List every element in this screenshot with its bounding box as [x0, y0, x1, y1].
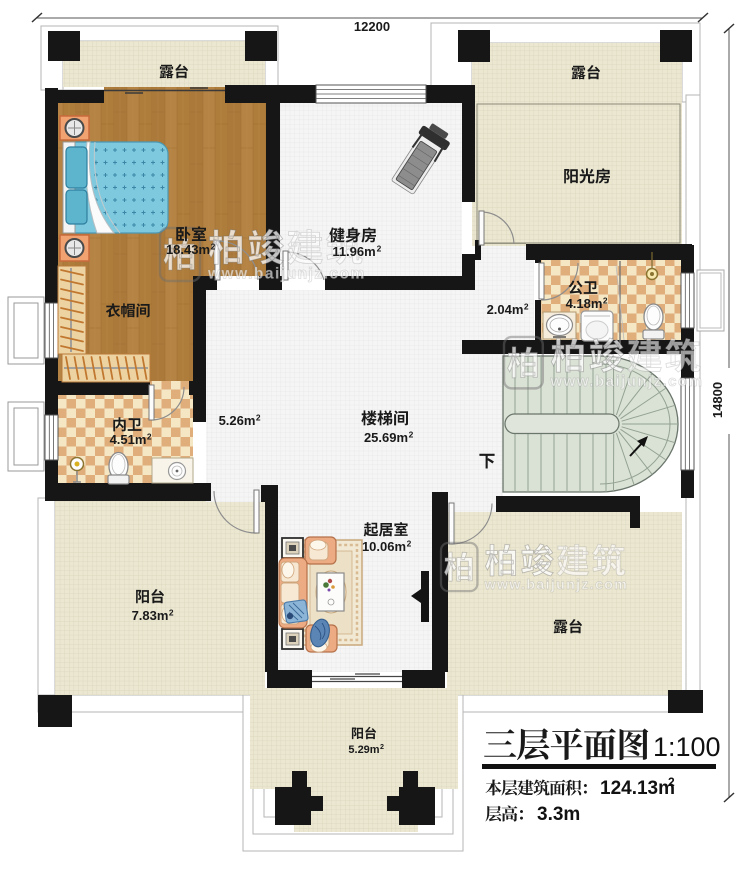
svg-text:18.43m: 18.43m — [166, 242, 210, 257]
svg-text:25.69m: 25.69m — [364, 430, 408, 445]
svg-text:2: 2 — [603, 295, 608, 305]
svg-text:11.96m: 11.96m — [332, 244, 375, 259]
svg-text:2: 2 — [377, 243, 382, 253]
svg-text:1:100: 1:100 — [653, 732, 721, 762]
svg-text:4.18m: 4.18m — [566, 296, 603, 311]
svg-text:www.baijunjz.com: www.baijunjz.com — [484, 576, 628, 592]
svg-text:3.3m: 3.3m — [537, 804, 580, 825]
svg-text:2: 2 — [211, 241, 216, 251]
svg-text:14800: 14800 — [710, 382, 725, 418]
svg-text:2: 2 — [407, 538, 412, 548]
svg-text:4.51m: 4.51m — [110, 432, 147, 447]
svg-text:124.13m: 124.13m — [600, 778, 675, 799]
svg-text:www.baijunjz.com: www.baijunjz.com — [207, 266, 366, 283]
svg-text:5.26m: 5.26m — [219, 413, 256, 428]
svg-text:2: 2 — [256, 412, 261, 422]
svg-text:7.83m: 7.83m — [132, 608, 169, 623]
svg-text:12200: 12200 — [354, 19, 390, 34]
svg-text:www.baijunjz.com: www.baijunjz.com — [550, 373, 704, 390]
svg-text:2: 2 — [380, 743, 384, 751]
svg-text:2.04m: 2.04m — [487, 302, 524, 317]
svg-text:2: 2 — [668, 775, 675, 789]
svg-text:2: 2 — [409, 429, 414, 439]
svg-text:2: 2 — [169, 607, 174, 617]
svg-text:10.06m: 10.06m — [362, 539, 406, 554]
svg-text:5.29m: 5.29m — [348, 744, 379, 756]
svg-text:2: 2 — [524, 301, 529, 311]
svg-text:2: 2 — [147, 431, 152, 441]
